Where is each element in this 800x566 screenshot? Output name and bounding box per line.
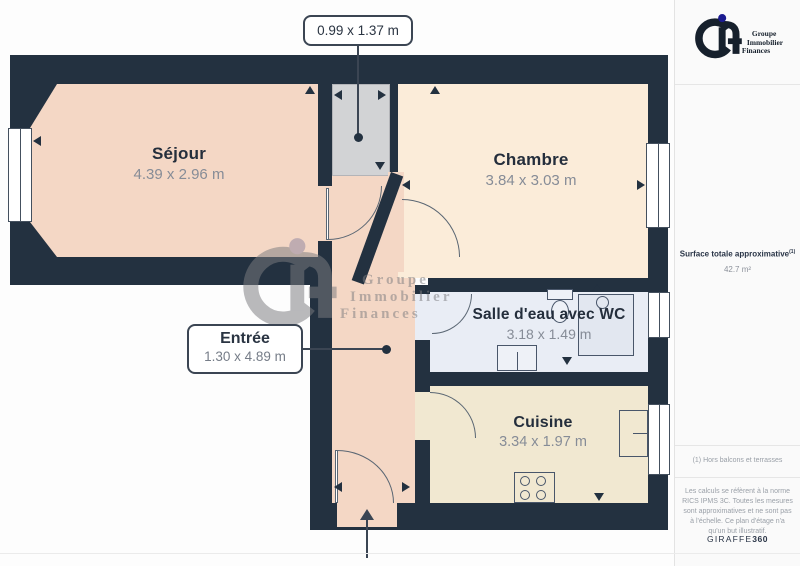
window-bath bbox=[648, 292, 670, 338]
entree-callout-dot bbox=[382, 345, 391, 354]
surface-block: Surface totale approximative(1) 42.7 m² bbox=[675, 249, 800, 274]
surface-value: 42.7 m² bbox=[675, 265, 800, 274]
footnote-text: (1) Hors balcons et terrasses bbox=[681, 456, 794, 466]
room-name: Chambre bbox=[451, 150, 611, 170]
label-cuisine: Cuisine 3.34 x 1.97 m bbox=[463, 414, 623, 450]
gif-watermark-glyph bbox=[236, 230, 354, 334]
gif-logo: Groupe Immobilier Finances bbox=[675, 10, 800, 62]
closet-callout-dot bbox=[354, 133, 363, 142]
bath-sink-divider bbox=[517, 352, 518, 371]
toilet-tank-icon bbox=[547, 289, 573, 300]
room-name: Cuisine bbox=[463, 414, 623, 432]
kitchen-sink-divider bbox=[633, 433, 647, 434]
measure-arrow-icon bbox=[562, 357, 572, 365]
measure-arrow-icon bbox=[375, 162, 385, 170]
entree-dims: 1.30 x 4.89 m bbox=[189, 349, 301, 364]
room-dims: 4.39 x 2.96 m bbox=[99, 166, 259, 183]
measure-arrow-icon bbox=[594, 493, 604, 501]
window-sejour bbox=[8, 128, 32, 222]
wall-closet-left bbox=[318, 84, 332, 194]
measure-arrow-icon bbox=[402, 482, 410, 492]
measure-arrow-icon bbox=[334, 482, 342, 492]
wall-closet-right bbox=[390, 84, 398, 174]
entree-callout: Entrée 1.30 x 4.89 m bbox=[187, 324, 303, 374]
entree-callout-line bbox=[302, 348, 386, 350]
measure-arrow-icon bbox=[33, 136, 41, 146]
giraffe360-logo: GIRAFFE360 bbox=[675, 534, 800, 544]
measure-arrow-icon bbox=[334, 90, 342, 100]
room-dims: 3.34 x 1.97 m bbox=[463, 434, 623, 450]
watermark-text: Groupe Immobilier Finances bbox=[340, 272, 453, 323]
measure-arrow-icon bbox=[305, 86, 315, 94]
giraffe360-suffix: 360 bbox=[752, 534, 768, 544]
window-cuisine bbox=[648, 404, 670, 475]
measure-arrow-icon bbox=[592, 284, 602, 292]
info-sidebar: Groupe Immobilier Finances Surface total… bbox=[674, 0, 800, 566]
entree-name: Entrée bbox=[189, 330, 301, 348]
disclaimer-text: Les calculs se réfèrent à la norme RICS … bbox=[681, 487, 794, 537]
closet-callout: 0.99 x 1.37 m bbox=[303, 15, 413, 46]
sidebar-divider bbox=[675, 445, 800, 446]
floor-plan: Groupe Immobilier Finances Séjour 4.39 x… bbox=[0, 0, 674, 566]
measure-arrow-icon bbox=[430, 86, 440, 94]
stove-icon bbox=[514, 472, 555, 503]
label-salle-eau: Salle d'eau avec WC 3.18 x 1.49 m bbox=[449, 306, 649, 342]
sidebar-divider bbox=[675, 84, 800, 85]
giraffe360-name: GIRAFFE bbox=[707, 534, 752, 544]
sidebar-divider bbox=[675, 477, 800, 478]
stove-burner-icon bbox=[520, 490, 530, 500]
measure-arrow-icon bbox=[637, 180, 645, 190]
wall-corridor-right-c bbox=[415, 440, 430, 503]
logo-text: Groupe Immobilier Finances bbox=[742, 30, 783, 56]
measure-arrow-icon bbox=[402, 180, 410, 190]
room-dims: 3.84 x 3.03 m bbox=[451, 172, 611, 189]
wall-top bbox=[330, 55, 668, 84]
surface-footnote-ref: (1) bbox=[789, 249, 795, 255]
room-name: Salle d'eau avec WC bbox=[449, 306, 649, 324]
surface-label: Surface totale approximative(1) bbox=[675, 249, 800, 259]
floorplan-page: Groupe Immobilier Finances Séjour 4.39 x… bbox=[0, 0, 800, 566]
stove-burner-icon bbox=[536, 476, 546, 486]
entry-arrow-head-icon bbox=[360, 509, 374, 520]
room-name: Séjour bbox=[99, 144, 259, 164]
wall-bath-cuisine bbox=[430, 372, 655, 386]
wall-corridor-right-b bbox=[415, 340, 430, 392]
page-bottom-divider bbox=[0, 553, 800, 554]
entry-arrow-icon bbox=[366, 518, 368, 558]
stove-burner-icon bbox=[520, 476, 530, 486]
window-chambre bbox=[646, 143, 670, 228]
cuisine-doorway-floor bbox=[415, 392, 430, 440]
measure-arrow-icon bbox=[378, 90, 386, 100]
closet-callout-line bbox=[357, 46, 359, 138]
label-chambre: Chambre 3.84 x 3.03 m bbox=[451, 150, 611, 189]
label-sejour: Séjour 4.39 x 2.96 m bbox=[99, 144, 259, 183]
stove-burner-icon bbox=[536, 490, 546, 500]
room-dims: 3.18 x 1.49 m bbox=[449, 326, 649, 342]
